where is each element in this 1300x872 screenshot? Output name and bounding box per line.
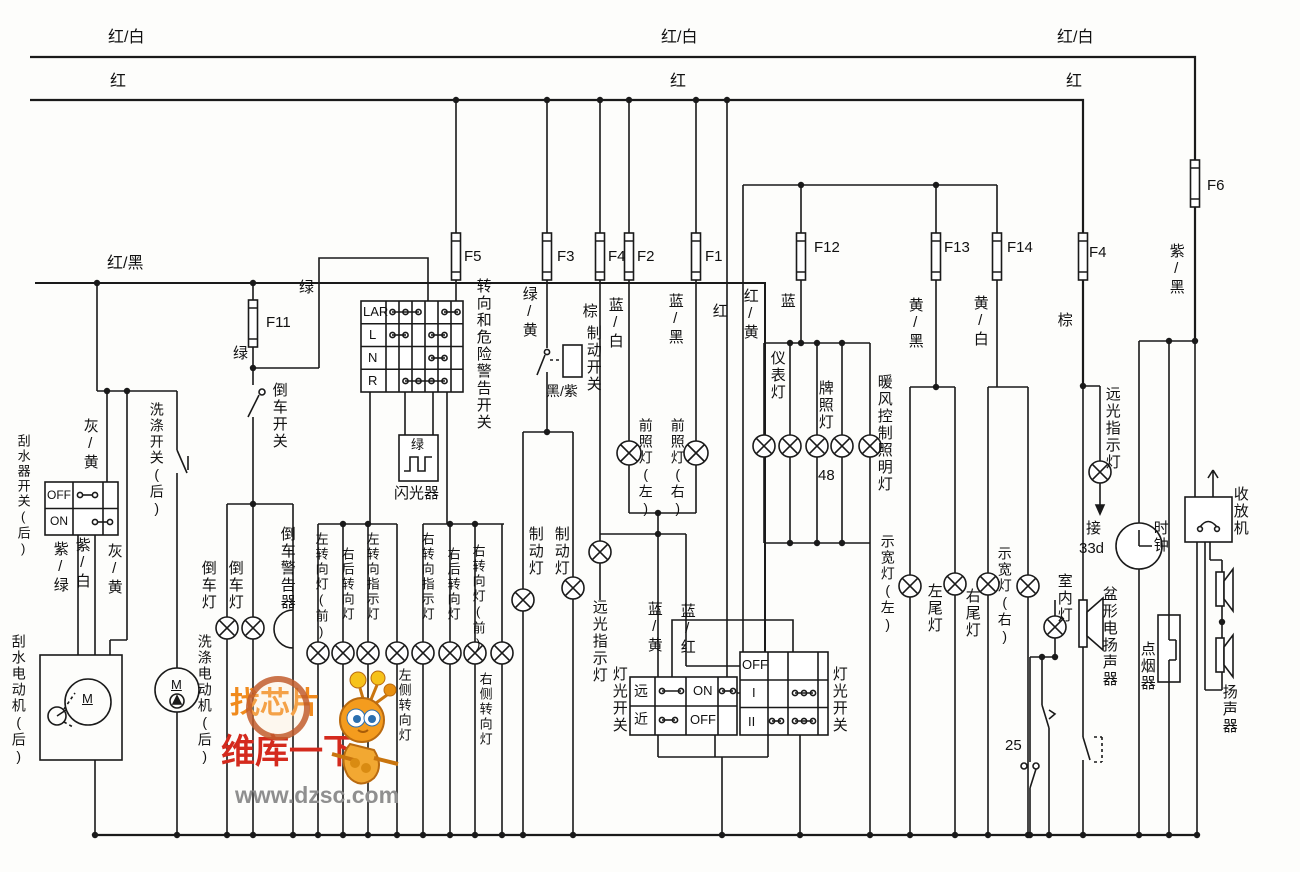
headlamp-left	[617, 441, 641, 465]
turn-lamp-left-side	[386, 642, 408, 664]
tail-lamp-right	[977, 573, 999, 595]
turn-lamp-right-front	[464, 642, 486, 664]
lamp-symbols	[216, 435, 1111, 664]
turn-indicator-right	[412, 642, 434, 664]
fuse-F12	[797, 233, 806, 280]
reverse-lamp-2	[242, 617, 264, 639]
wiper-switch[interactable]	[45, 482, 118, 535]
radio-branch	[1185, 341, 1233, 835]
brake-circuit	[523, 100, 582, 835]
fuse-F1	[692, 233, 701, 280]
headlamp-right	[684, 441, 708, 465]
instrument-lamp-1	[753, 435, 775, 457]
fuse-F2	[625, 233, 634, 280]
license-lamp	[806, 435, 828, 457]
wiper-motor	[40, 655, 122, 760]
watermark-mascot	[320, 668, 406, 802]
washer-motor	[155, 668, 199, 712]
position-lamp-left	[899, 575, 921, 597]
cigarette-lighter-branch[interactable]	[1158, 341, 1180, 835]
fuse-F4-right	[1079, 233, 1088, 280]
room-lamp	[1044, 616, 1066, 638]
heater-illum-lamp	[859, 435, 881, 457]
fuse-F3	[543, 233, 552, 280]
watermark-magnifier-icon	[246, 676, 310, 740]
reverse-lamp-1	[216, 617, 238, 639]
turn-lamp-rear-1	[332, 642, 354, 664]
dimmer-switch[interactable]	[630, 677, 737, 735]
wiring-diagram-linework	[0, 0, 1300, 872]
turn-hazard-switch[interactable]	[361, 301, 463, 392]
fuse-F14	[993, 233, 1002, 280]
fuse-F4	[596, 233, 605, 280]
turn-lamp-right-side	[491, 642, 513, 664]
light-switch-wiring	[658, 735, 800, 835]
fuse-F11	[249, 300, 258, 347]
instrument-lamp-2	[779, 435, 801, 457]
panel-lamp-circuit	[743, 185, 1028, 835]
highbeam-indicator-right	[1083, 386, 1104, 514]
wiring-diagram-page: 红/白红/白红/白红红红红/黑F11绿绿倒车开关F5转向和危险警告开关绿闪光器绿…	[0, 0, 1300, 872]
bus-red	[30, 100, 1083, 386]
fuse-F5	[452, 233, 461, 280]
clock-branch	[1116, 341, 1195, 835]
turn-lamp-left-front	[307, 642, 329, 664]
turn-indicator-left	[357, 642, 379, 664]
brake-lamp-2	[562, 577, 584, 599]
fuse-F13	[932, 233, 941, 280]
highbeam-indicator-lamp-c	[589, 541, 611, 563]
wiper-washer-circuit	[78, 283, 188, 835]
fuse-F6	[1191, 160, 1200, 207]
flasher	[399, 435, 438, 481]
highbeam-indicator-lamp-r	[1089, 461, 1111, 483]
turn-lamp-rear-2	[439, 642, 461, 664]
main-light-switch[interactable]	[740, 652, 828, 735]
panel-lamp-4	[831, 435, 853, 457]
brake-lamp-1	[512, 589, 534, 611]
tail-lamp-left	[944, 573, 966, 595]
position-lamp-right	[1017, 575, 1039, 597]
